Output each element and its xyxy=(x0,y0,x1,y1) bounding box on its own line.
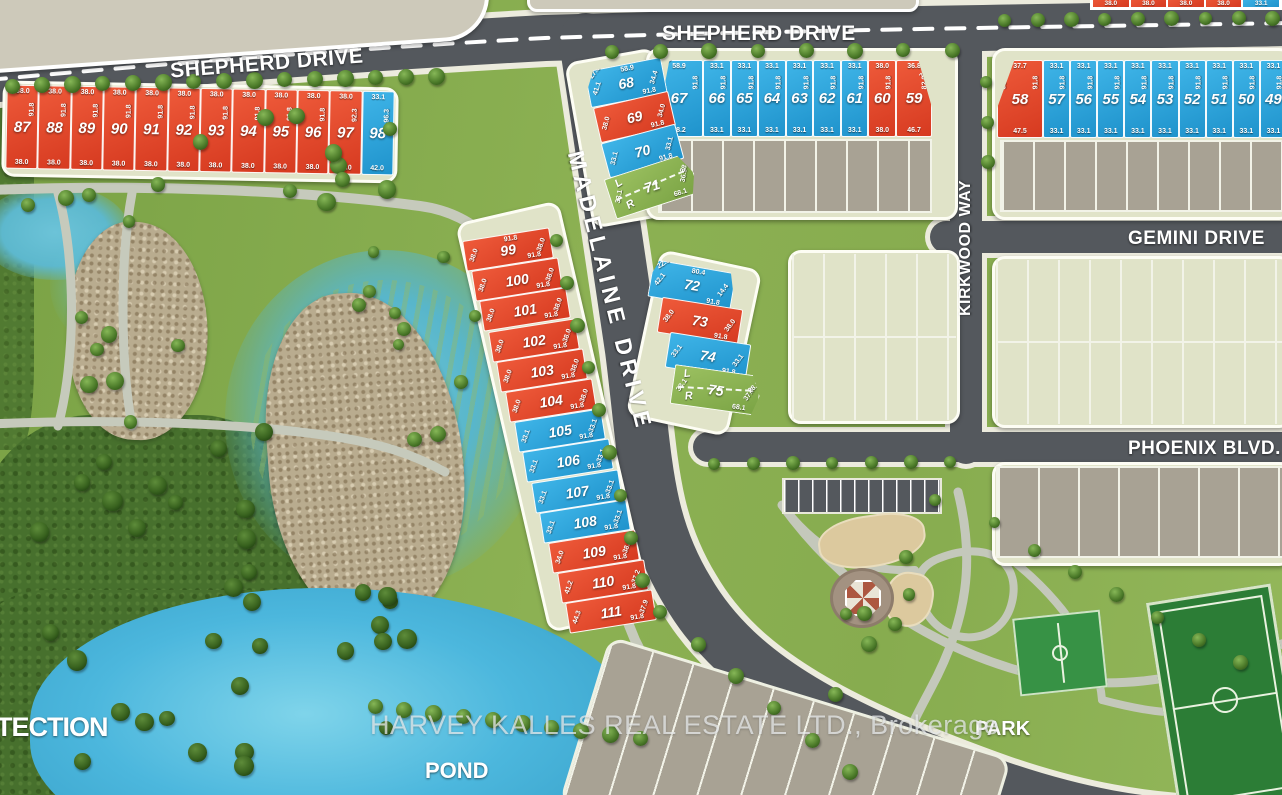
lot-90: 38.091.838.090 xyxy=(102,86,136,171)
dimension-label: 91.8 xyxy=(886,76,893,90)
lot-number: 51 xyxy=(1211,91,1228,108)
dimension-label: 28.2 xyxy=(672,127,686,134)
lot-53: 33.191.833.153 xyxy=(1151,60,1178,138)
dimension-label: 38.0 xyxy=(209,162,223,169)
lot-number: 61 xyxy=(846,90,863,107)
lot-number: 67 xyxy=(671,90,688,107)
parking-lot xyxy=(782,478,942,514)
dimension-label: 91.8 xyxy=(287,107,294,121)
lot-52: 33.191.833.152 xyxy=(1179,60,1206,138)
dimension-label: 91.8 xyxy=(1168,76,1175,90)
lot-95: 38.091.838.095 xyxy=(264,89,298,174)
dimension-label: 91.8 xyxy=(803,76,810,90)
dimension-label: 82.0 xyxy=(1000,76,1007,90)
lot-64: 33.191.833.164 xyxy=(758,60,786,137)
lot-number: 97 xyxy=(337,124,354,141)
lot-number: 50 xyxy=(1238,91,1255,108)
dimension-label: 33.1 xyxy=(1077,128,1091,135)
dimension-label: 33.1 xyxy=(1077,63,1091,70)
dimension-label: 91.8 xyxy=(1141,76,1148,90)
basketball-court xyxy=(1012,610,1108,697)
lot-98: 33.196.342.098 xyxy=(361,91,395,176)
lot-94: 38.091.838.094 xyxy=(232,89,266,174)
dimension-label: 91.8 xyxy=(222,106,229,120)
dimension-label: 92.3 xyxy=(351,108,358,122)
dimension-label: 33.1 xyxy=(738,63,752,70)
brokerage-watermark: HARVEY KALLES REAL ESTATE LTD., Brokerag… xyxy=(370,710,999,741)
dimension-label: 33.1 xyxy=(848,127,862,134)
gazebo xyxy=(845,580,881,616)
dimension-label: 33.1 xyxy=(710,63,724,70)
dimension-label: 42.0 xyxy=(370,165,384,172)
lot-number: 57 xyxy=(1048,91,1065,108)
lot-number: 88 xyxy=(46,119,63,136)
dimension-label: 38.0 xyxy=(275,92,289,99)
lot-61: 33.191.833.161 xyxy=(841,60,869,137)
dimension-label: 33.1 xyxy=(848,63,862,70)
lot-number: 65 xyxy=(736,90,753,107)
dimension-label: 91.8 xyxy=(831,76,838,90)
strip-lot: 33.1 xyxy=(1242,0,1280,8)
dimension-label: 33.1 xyxy=(1050,63,1064,70)
dimension-label: 38.0 xyxy=(338,164,352,171)
dimension-label: 33.1 xyxy=(1240,128,1254,135)
dimension-label: 91.8 xyxy=(1277,76,1282,90)
lot-96: 38.091.838.096 xyxy=(296,90,330,175)
dimension-label: 91.8 xyxy=(720,76,727,90)
dimension-label: 91.8 xyxy=(1222,76,1229,90)
dimension-label: 33.1 xyxy=(710,127,724,134)
lot-number: 52 xyxy=(1184,91,1201,108)
lot-block-87-98: 38.091.838.08738.091.838.08838.091.838.0… xyxy=(5,85,394,176)
lot-93: 38.091.838.093 xyxy=(199,88,233,173)
lot-87: 38.091.838.087 xyxy=(5,85,39,170)
lot-number: 90 xyxy=(111,120,128,137)
lot-number: 62 xyxy=(819,90,836,107)
lot-number: 92 xyxy=(175,121,192,138)
dimension-label: 38.0 xyxy=(178,91,192,98)
trail-south xyxy=(0,422,445,472)
lot-92: 38.091.838.092 xyxy=(167,87,201,172)
dimension-label: 91.8 xyxy=(1060,76,1067,90)
dimension-label: 33.1 xyxy=(765,63,779,70)
dimension-label: 33.1 xyxy=(1267,128,1281,135)
dimension-label: 33.1 xyxy=(738,127,752,134)
street-label-gemini: GEMINI DRIVE xyxy=(1128,228,1265,250)
lot-number: 87 xyxy=(14,118,31,135)
dimension-label: 38.0 xyxy=(210,91,224,98)
lot-63: 33.191.833.163 xyxy=(786,60,814,137)
lot-strip-topright: 38.038.038.038.033.1 xyxy=(1090,0,1282,10)
dimension-label: 46.7 xyxy=(907,127,921,134)
lot-number: 53 xyxy=(1157,91,1174,108)
dimension-label: 33.1 xyxy=(1131,128,1145,135)
dimension-label: 38.0 xyxy=(242,92,256,99)
lot-number: 58 xyxy=(1012,91,1029,108)
dimension-label: 33.1 xyxy=(1104,63,1118,70)
dimension-label: 38.0 xyxy=(176,162,190,169)
dimension-label: 38.0 xyxy=(47,159,61,166)
trail-loop-2 xyxy=(123,193,132,426)
dimension-label: 91.8 xyxy=(748,76,755,90)
lot-number: 60 xyxy=(874,90,891,107)
lot-89: 38.091.838.089 xyxy=(70,86,104,171)
dimension-label: 33.1 xyxy=(793,127,807,134)
dimension-label: 38.0 xyxy=(81,89,95,96)
dimension-label: 91.8 xyxy=(1087,76,1094,90)
lot-59: 36.873.982.046.759 xyxy=(896,60,932,137)
dimension-label: 38.0 xyxy=(48,88,62,95)
dimension-label: 38.0 xyxy=(145,90,159,97)
dimension-label: 91.8 xyxy=(125,104,132,118)
dimension-label: 91.8 xyxy=(61,103,68,117)
dimension-label: 38.0 xyxy=(339,93,353,100)
lot-number: 98 xyxy=(369,124,386,141)
lot-block-67-59: 58.954.891.828.26733.191.833.16633.191.8… xyxy=(655,60,932,137)
dimension-label: 91.8 xyxy=(28,102,35,116)
lot-number: 56 xyxy=(1075,91,1092,108)
future-lots xyxy=(996,260,1282,424)
street-label-shepherd-right: SHEPHERD DRIVE xyxy=(662,22,856,46)
lot-67: 58.954.891.828.267 xyxy=(655,60,703,137)
dimension-label: 47.5 xyxy=(1013,128,1027,135)
dimension-label: 38.0 xyxy=(307,93,321,100)
dimension-label: 58.9 xyxy=(672,63,686,70)
dimension-label: 33.1 xyxy=(1104,128,1118,135)
street-label-phoenix: PHOENIX BLVD. xyxy=(1128,438,1281,460)
lot-number: 55 xyxy=(1102,91,1119,108)
dimension-label: 38.0 xyxy=(306,164,320,171)
future-lots xyxy=(792,254,956,420)
dimension-label: 33.1 xyxy=(1158,63,1172,70)
dimension-label: 38.0 xyxy=(144,161,158,168)
dimension-label: 38.0 xyxy=(273,163,287,170)
lot-number: 96 xyxy=(305,123,322,140)
dimension-label: 91.8 xyxy=(190,105,197,119)
dimension-label: 91.8 xyxy=(93,103,100,117)
lot-number: 64 xyxy=(764,90,781,107)
dimension-label: 38.0 xyxy=(112,160,126,167)
lot-56: 33.191.833.156 xyxy=(1070,60,1097,138)
dimension-label: 91.8 xyxy=(1033,76,1040,90)
lot-88: 38.091.838.088 xyxy=(38,85,72,170)
dimension-label: 33.1 xyxy=(793,63,807,70)
strip-lot: 38.0 xyxy=(1205,0,1243,8)
lot-50: 33.191.833.150 xyxy=(1233,60,1260,138)
future-lots xyxy=(658,139,932,213)
future-lots xyxy=(996,466,1282,558)
lot-58: 37.773.982.091.847.558 xyxy=(997,60,1043,138)
lot-number: 94 xyxy=(240,122,257,139)
dimension-label: 37.7 xyxy=(1013,63,1027,70)
lot-number: 93 xyxy=(208,122,225,139)
strip-lot: 38.0 xyxy=(1167,0,1205,8)
dimension-label: 91.8 xyxy=(775,76,782,90)
lot-number: 49 xyxy=(1265,91,1282,108)
dimension-label: 96.3 xyxy=(384,109,391,123)
dimension-label: 33.1 xyxy=(1267,63,1281,70)
lot-66: 33.191.833.166 xyxy=(703,60,731,137)
dimension-label: 33.1 xyxy=(1185,128,1199,135)
dimension-label: 38.0 xyxy=(113,89,127,96)
area-label-pond: POND xyxy=(425,758,489,784)
strip-lot: 38.0 xyxy=(1092,0,1130,8)
dimension-label: 33.1 xyxy=(1050,128,1064,135)
dimension-label: 33.1 xyxy=(1212,128,1226,135)
lot-number: 89 xyxy=(78,119,95,136)
dimension-label: 38.0 xyxy=(875,63,889,70)
lot-91: 38.091.838.091 xyxy=(135,87,169,172)
lot-62: 33.191.833.162 xyxy=(813,60,841,137)
lot-number: 91 xyxy=(143,121,160,138)
lot-number: 59 xyxy=(906,90,923,107)
lot-57: 33.191.833.157 xyxy=(1043,60,1070,138)
trail-loop-1 xyxy=(58,193,72,426)
dimension-label: 82.0 xyxy=(922,76,929,90)
lot-number: 95 xyxy=(272,123,289,140)
dimension-label: 91.8 xyxy=(158,105,165,119)
dimension-label: 38.0 xyxy=(15,159,29,166)
dimension-label: 73.9 xyxy=(919,65,933,80)
future-lots xyxy=(1000,140,1282,212)
dimension-label: 91.8 xyxy=(1114,76,1121,90)
dimension-label: 91.8 xyxy=(254,106,261,120)
existing-block-topcenter xyxy=(527,0,919,12)
dimension-label: 36.8 xyxy=(907,63,921,70)
dimension-label: 33.1 xyxy=(820,63,834,70)
lot-65: 33.191.833.165 xyxy=(731,60,759,137)
lot-number: 54 xyxy=(1130,91,1147,108)
dimension-label: 33.1 xyxy=(1158,128,1172,135)
dimension-label: 91.8 xyxy=(1195,76,1202,90)
dimension-label: 91.8 xyxy=(319,107,326,121)
site-plan-map: 38.091.838.08738.091.838.08838.091.838.0… xyxy=(0,0,1282,795)
dimension-label: 33.1 xyxy=(1185,63,1199,70)
lot-number: 66 xyxy=(708,90,725,107)
lot-55: 33.191.833.155 xyxy=(1097,60,1124,138)
dimension-label: 33.1 xyxy=(765,127,779,134)
dimension-label: 38.0 xyxy=(241,163,255,170)
lot-number: 63 xyxy=(791,90,808,107)
lot-block-58-49: 37.773.982.091.847.55833.191.833.15733.1… xyxy=(997,60,1282,138)
dimension-label: 91.8 xyxy=(693,76,700,90)
lot-51: 33.191.833.151 xyxy=(1206,60,1233,138)
lot-97: 38.092.338.097 xyxy=(329,90,363,175)
dimension-label: 33.1 xyxy=(371,94,385,101)
lot-60: 38.091.838.060 xyxy=(868,60,896,137)
dimension-label: 33.1 xyxy=(820,127,834,134)
dimension-label: 91.8 xyxy=(858,76,865,90)
lot-49: 33.191.833.149 xyxy=(1260,60,1282,138)
dimension-label: 38.0 xyxy=(875,127,889,134)
dimension-label: 38.0 xyxy=(79,160,93,167)
area-label-protection: TECTION xyxy=(0,712,108,743)
dimension-label: 33.1 xyxy=(1131,63,1145,70)
lot-54: 33.191.833.154 xyxy=(1124,60,1151,138)
dimension-label: 91.8 xyxy=(1250,76,1257,90)
street-label-kirkwood: KIRKWOOD WAY xyxy=(957,180,975,316)
dimension-label: 33.1 xyxy=(1240,63,1254,70)
dimension-label: 33.1 xyxy=(1212,63,1226,70)
dimension-label: 38.0 xyxy=(16,88,30,95)
strip-lot: 38.0 xyxy=(1130,0,1168,8)
